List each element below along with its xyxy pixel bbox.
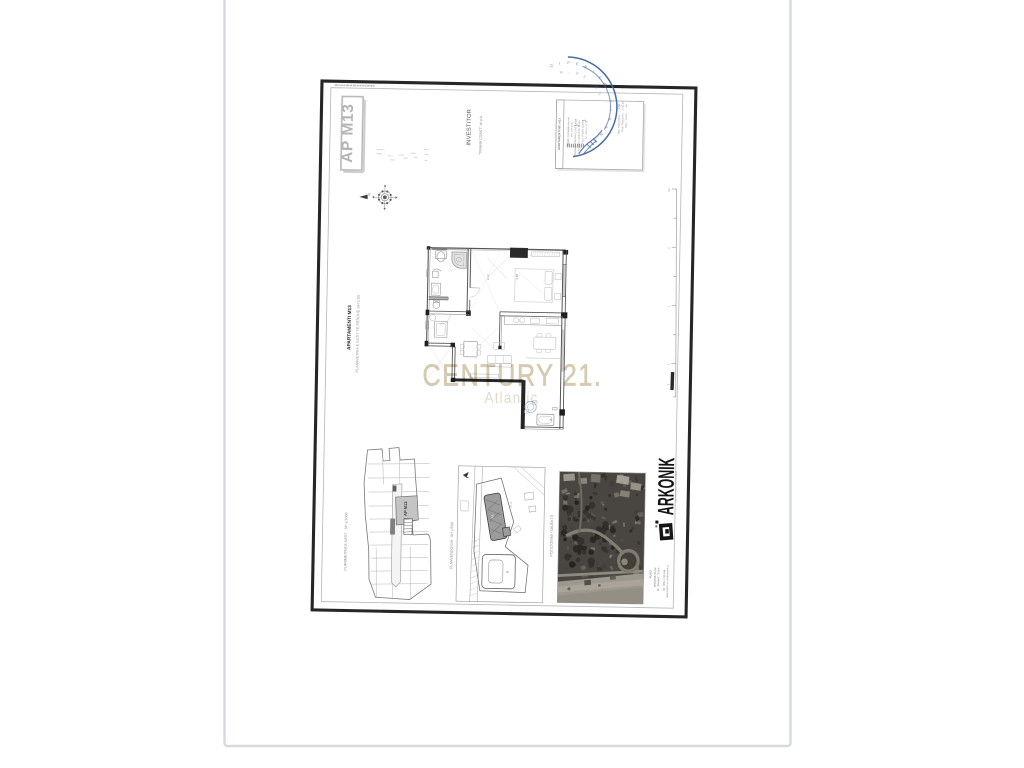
svg-text:2.10.20: 2.10.20 [621,101,625,110]
svg-text:Rep. i zones: Rep. i zones [624,113,628,128]
svg-text:Rr. “Kavajes”, Tirane: Rr. “Kavajes”, Tirane [656,567,660,591]
svg-text:INVESTITOR: INVESTITOR [466,109,473,146]
svg-text:B: B [506,571,510,573]
svg-text:Faza: Projekt zbatimi: Faza: Projekt zbatimi [580,119,584,144]
svg-text:A1: A1 [491,514,495,518]
svg-text:APARTAMENTI M13: APARTAMENTI M13 [346,305,353,350]
svg-text:4.10: 4.10 [486,274,490,280]
svg-text:CENTURY 21.: CENTURY 21. [423,359,603,393]
svg-text:“TIRANA COAST” sh.p.k.: “TIRANA COAST” sh.p.k. [478,115,483,155]
svg-text:AP M13: AP M13 [403,501,408,516]
svg-text:5m: 5m [667,188,671,192]
svg-text:ARCHITECTURE · ENGINEERING: ARCHITECTURE · ENGINEERING [674,470,678,502]
svg-text:AP M13: AP M13 [339,103,357,163]
svg-text:POZICIONIMI I OBJEKTIT: POZICIONIMI I OBJEKTIT [549,513,554,556]
svg-text:PUNOI: PUNOI [648,570,652,579]
svg-text:Atlantic: Atlantic [485,390,539,407]
svg-text:APARTAMENTI NR. M13: APARTAMENTI NR. M13 [557,118,562,151]
svg-text:Nr. i fletes: A-13: Nr. i fletes: A-13 [584,120,588,139]
svg-text:dhe sherbimi: dhe sherbimi [569,122,573,137]
svg-text:www.arkonik.al info@arkonik.a: www.arkonik.al info@arkonik.al [666,565,670,599]
svg-text:25.40: 25.40 [511,501,513,508]
svg-text:3.85: 3.85 [515,273,519,279]
